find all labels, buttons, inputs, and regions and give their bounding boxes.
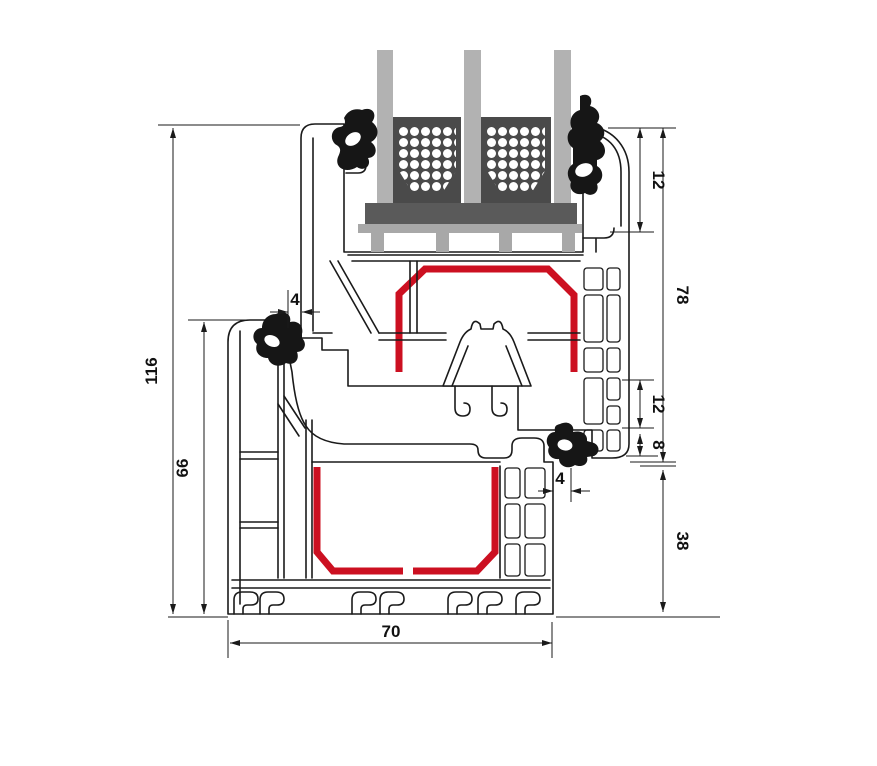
dim-label-frame-height: 66 (173, 459, 192, 478)
desiccant-dots-left (399, 127, 456, 192)
dim-label-lock-chamber: 12 (649, 395, 668, 414)
glazing-unit (358, 50, 582, 252)
gasket-sash-top-right (568, 95, 605, 195)
technical-drawing-svg: 116 66 4 12 78 12 8 4 38 70 (0, 0, 877, 766)
dim-label-glazing-bead: 12 (649, 171, 668, 190)
glass-pane-outer (377, 50, 393, 206)
dim-label-overall-height: 116 (142, 357, 161, 384)
glazing-block (365, 203, 577, 224)
glass-pane-inner (554, 50, 571, 206)
dim-label-groove: 8 (649, 440, 668, 449)
desiccant-dots-right (487, 127, 545, 192)
dim-label-bottom-gasket-gap: 4 (555, 469, 565, 488)
dim-label-frame-face-below-sash: 38 (673, 532, 692, 551)
glass-pane-middle (464, 50, 481, 206)
dim-label-profile-depth: 70 (382, 622, 401, 641)
window-profile-drawing: 116 66 4 12 78 12 8 4 38 70 (0, 0, 877, 766)
dim-label-sash-overall: 78 (673, 286, 692, 305)
glazing-bridge (358, 224, 582, 252)
dim-label-top-gasket-gap: 4 (290, 290, 300, 309)
